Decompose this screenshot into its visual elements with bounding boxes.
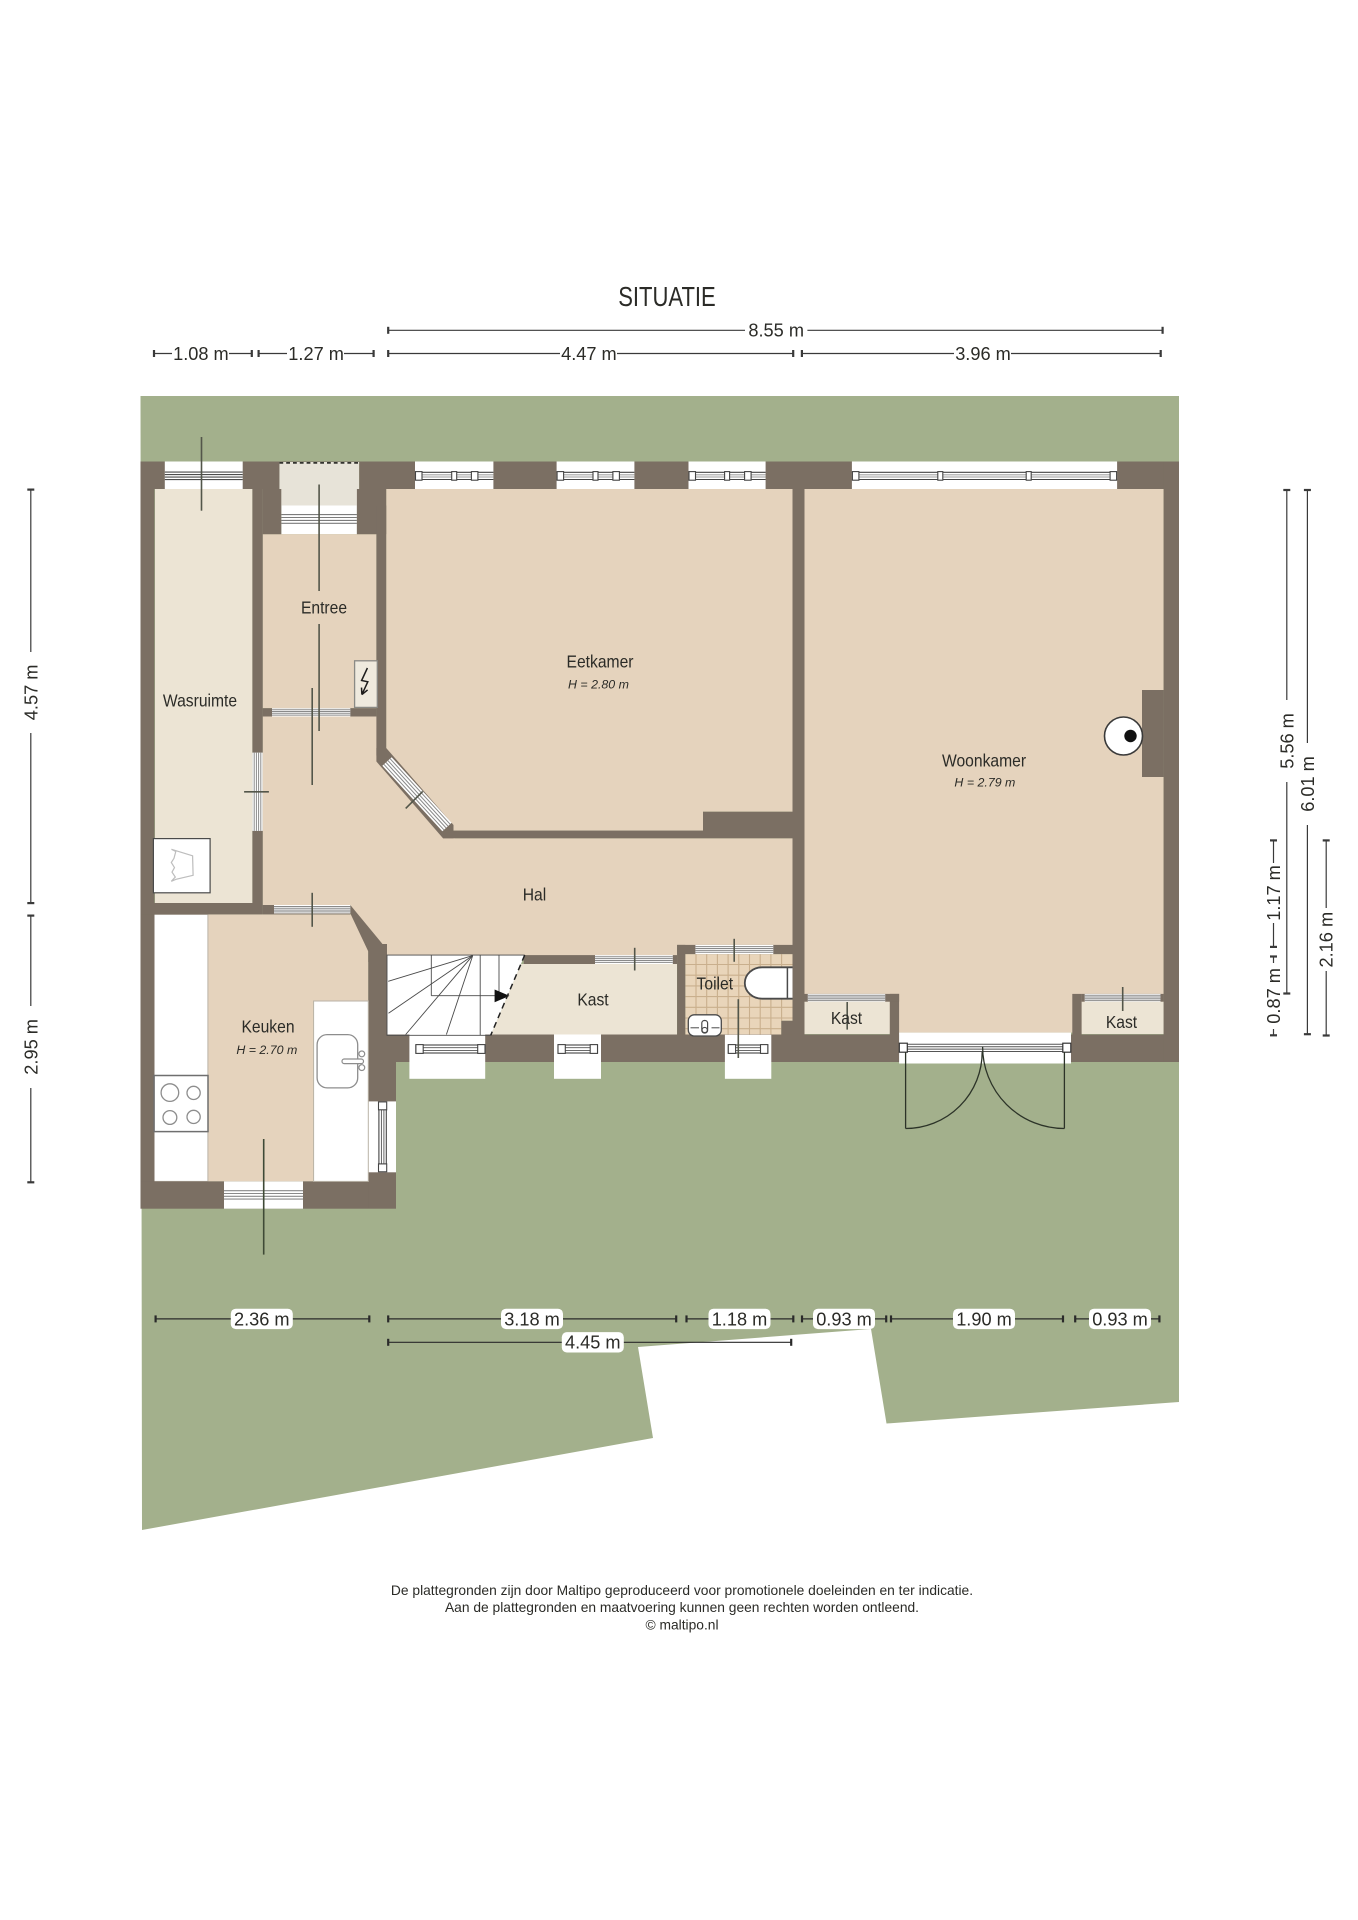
svg-text:4.57 m: 4.57 m — [21, 665, 41, 721]
svg-text:Entree: Entree — [301, 597, 347, 617]
svg-text:De plattegronden zijn door Mal: De plattegronden zijn door Maltipo gepro… — [391, 1583, 973, 1598]
svg-text:Hal: Hal — [523, 884, 546, 904]
svg-text:© maltipo.nl: © maltipo.nl — [645, 1618, 718, 1633]
svg-text:H = 2.79 m: H = 2.79 m — [954, 775, 1015, 789]
svg-text:1.90 m: 1.90 m — [956, 1309, 1012, 1329]
svg-text:4.47 m: 4.47 m — [561, 344, 617, 364]
svg-text:Kast: Kast — [577, 989, 609, 1009]
svg-text:4.45 m: 4.45 m — [565, 1333, 621, 1353]
svg-text:Keuken: Keuken — [241, 1016, 294, 1036]
svg-text:3.96 m: 3.96 m — [955, 344, 1011, 364]
svg-text:1.08 m: 1.08 m — [173, 344, 229, 364]
svg-text:1.17 m: 1.17 m — [1264, 865, 1284, 921]
svg-text:6.01 m: 6.01 m — [1298, 756, 1318, 812]
svg-text:SITUATIE: SITUATIE — [618, 281, 716, 312]
svg-text:1.27 m: 1.27 m — [288, 344, 344, 364]
svg-text:Aan de plattegronden en maatvo: Aan de plattegronden en maatvoering kunn… — [445, 1600, 919, 1615]
svg-text:Woonkamer: Woonkamer — [942, 750, 1026, 770]
svg-text:2.36 m: 2.36 m — [234, 1309, 290, 1329]
svg-text:0.93 m: 0.93 m — [816, 1309, 872, 1329]
svg-text:5.56 m: 5.56 m — [1277, 713, 1297, 769]
svg-text:2.95 m: 2.95 m — [21, 1019, 41, 1075]
svg-text:H = 2.70 m: H = 2.70 m — [236, 1043, 297, 1057]
svg-text:Kast: Kast — [831, 1008, 863, 1028]
svg-text:3.18 m: 3.18 m — [504, 1309, 560, 1329]
svg-text:8.55 m: 8.55 m — [748, 321, 804, 341]
svg-text:Toilet: Toilet — [697, 973, 734, 993]
svg-text:H = 2.80 m: H = 2.80 m — [568, 677, 629, 691]
svg-text:0.93 m: 0.93 m — [1092, 1309, 1148, 1329]
svg-text:Wasruimte: Wasruimte — [163, 690, 237, 710]
svg-text:Eetkamer: Eetkamer — [567, 652, 634, 672]
svg-text:Kast: Kast — [1106, 1012, 1138, 1032]
svg-text:2.16 m: 2.16 m — [1317, 912, 1337, 968]
svg-text:0.87 m: 0.87 m — [1264, 968, 1284, 1024]
svg-text:1.18 m: 1.18 m — [712, 1309, 768, 1329]
